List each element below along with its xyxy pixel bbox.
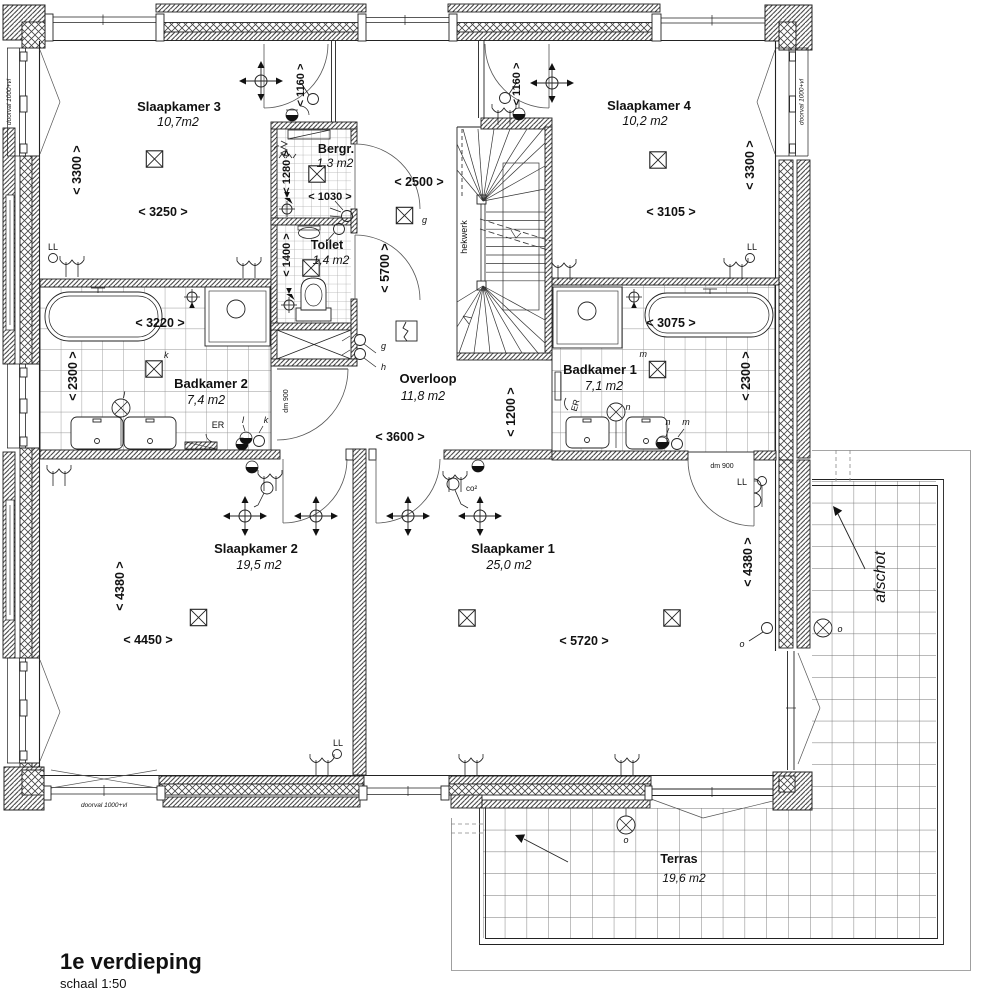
svg-text:< 3300 >: < 3300 > <box>70 145 84 194</box>
svg-text:10,7m2: 10,7m2 <box>157 115 199 129</box>
svg-text:< 1200 >: < 1200 > <box>504 387 518 436</box>
svg-text:g: g <box>381 341 386 351</box>
svg-text:doorval 1000+vl: doorval 1000+vl <box>799 78 806 125</box>
svg-text:LL: LL <box>333 738 343 748</box>
svg-text:doorval 1000+vl: doorval 1000+vl <box>81 802 128 809</box>
svg-text:o: o <box>623 835 628 845</box>
svg-text:< 5700 >: < 5700 > <box>378 243 392 292</box>
svg-text:schaal 1:50: schaal 1:50 <box>60 976 127 991</box>
svg-text:1,4 m2: 1,4 m2 <box>313 253 350 267</box>
svg-text:m: m <box>682 417 690 427</box>
svg-text:< 2300 >: < 2300 > <box>66 351 80 400</box>
svg-text:n: n <box>665 417 670 427</box>
svg-text:1,3 m2: 1,3 m2 <box>317 156 354 170</box>
svg-text:7,4 m2: 7,4 m2 <box>187 393 225 407</box>
svg-text:m: m <box>640 349 648 359</box>
svg-text:< 3250 >: < 3250 > <box>138 205 187 219</box>
svg-text:10,2 m2: 10,2 m2 <box>622 114 667 128</box>
svg-text:< 4380 >: < 4380 > <box>741 537 755 586</box>
svg-text:Slaapkamer 3: Slaapkamer 3 <box>137 99 221 114</box>
svg-text:dm 900: dm 900 <box>710 463 733 470</box>
svg-text:o: o <box>739 639 744 649</box>
svg-text:Toilet: Toilet <box>311 238 344 252</box>
svg-text:hekwerk: hekwerk <box>459 220 469 254</box>
svg-text:< 4380 >: < 4380 > <box>113 561 127 610</box>
svg-text:< 1030 >: < 1030 > <box>308 191 351 203</box>
svg-text:7,1 m2: 7,1 m2 <box>585 379 623 393</box>
svg-text:afschot: afschot <box>872 551 889 603</box>
svg-text:< 2300 >: < 2300 > <box>739 351 753 400</box>
svg-text:h: h <box>381 362 386 372</box>
svg-text:< 3220 >: < 3220 > <box>135 316 184 330</box>
svg-text:< 3300 >: < 3300 > <box>743 140 757 189</box>
svg-text:< 3600 >: < 3600 > <box>375 430 424 444</box>
svg-text:Terras: Terras <box>660 852 697 866</box>
svg-text:19,6 m2: 19,6 m2 <box>662 871 706 885</box>
svg-text:o: o <box>837 624 842 634</box>
svg-text:< 1160 >: < 1160 > <box>511 63 523 106</box>
svg-text:LL: LL <box>747 242 757 252</box>
svg-text:1e verdieping: 1e verdieping <box>60 949 202 974</box>
svg-text:< 4450 >: < 4450 > <box>123 633 172 647</box>
svg-text:< 1160 >: < 1160 > <box>295 64 307 107</box>
svg-text:dm 900: dm 900 <box>283 389 290 412</box>
svg-text:n: n <box>625 402 630 412</box>
svg-text:< 1280 >: < 1280 > <box>281 150 293 193</box>
svg-text:19,5 m2: 19,5 m2 <box>236 558 281 572</box>
svg-text:k: k <box>164 350 169 360</box>
svg-text:11,8 m2: 11,8 m2 <box>401 389 445 403</box>
svg-text:Slaapkamer 2: Slaapkamer 2 <box>214 541 298 556</box>
svg-text:ER: ER <box>212 420 225 430</box>
svg-text:Overloop: Overloop <box>399 371 456 386</box>
svg-text:LL: LL <box>48 242 58 252</box>
svg-text:Bergr.: Bergr. <box>318 142 354 156</box>
svg-text:Badkamer 1: Badkamer 1 <box>563 362 637 377</box>
svg-text:25,0 m2: 25,0 m2 <box>485 558 531 572</box>
svg-text:Slaapkamer 1: Slaapkamer 1 <box>471 541 555 556</box>
svg-text:co²: co² <box>466 484 477 493</box>
svg-text:< 2500 >: < 2500 > <box>394 175 443 189</box>
svg-text:< 3105 >: < 3105 > <box>646 205 695 219</box>
svg-text:Badkamer 2: Badkamer 2 <box>174 376 248 391</box>
svg-text:Slaapkamer 4: Slaapkamer 4 <box>607 98 692 113</box>
svg-text:< 5720 >: < 5720 > <box>559 634 608 648</box>
svg-text:doorval 1000+vl: doorval 1000+vl <box>6 78 13 125</box>
svg-text:< 3075 >: < 3075 > <box>646 316 695 330</box>
svg-text:g: g <box>422 215 427 225</box>
svg-text:LL: LL <box>737 477 747 487</box>
svg-text:k: k <box>264 415 269 425</box>
svg-text:< 1400 >: < 1400 > <box>281 233 293 276</box>
